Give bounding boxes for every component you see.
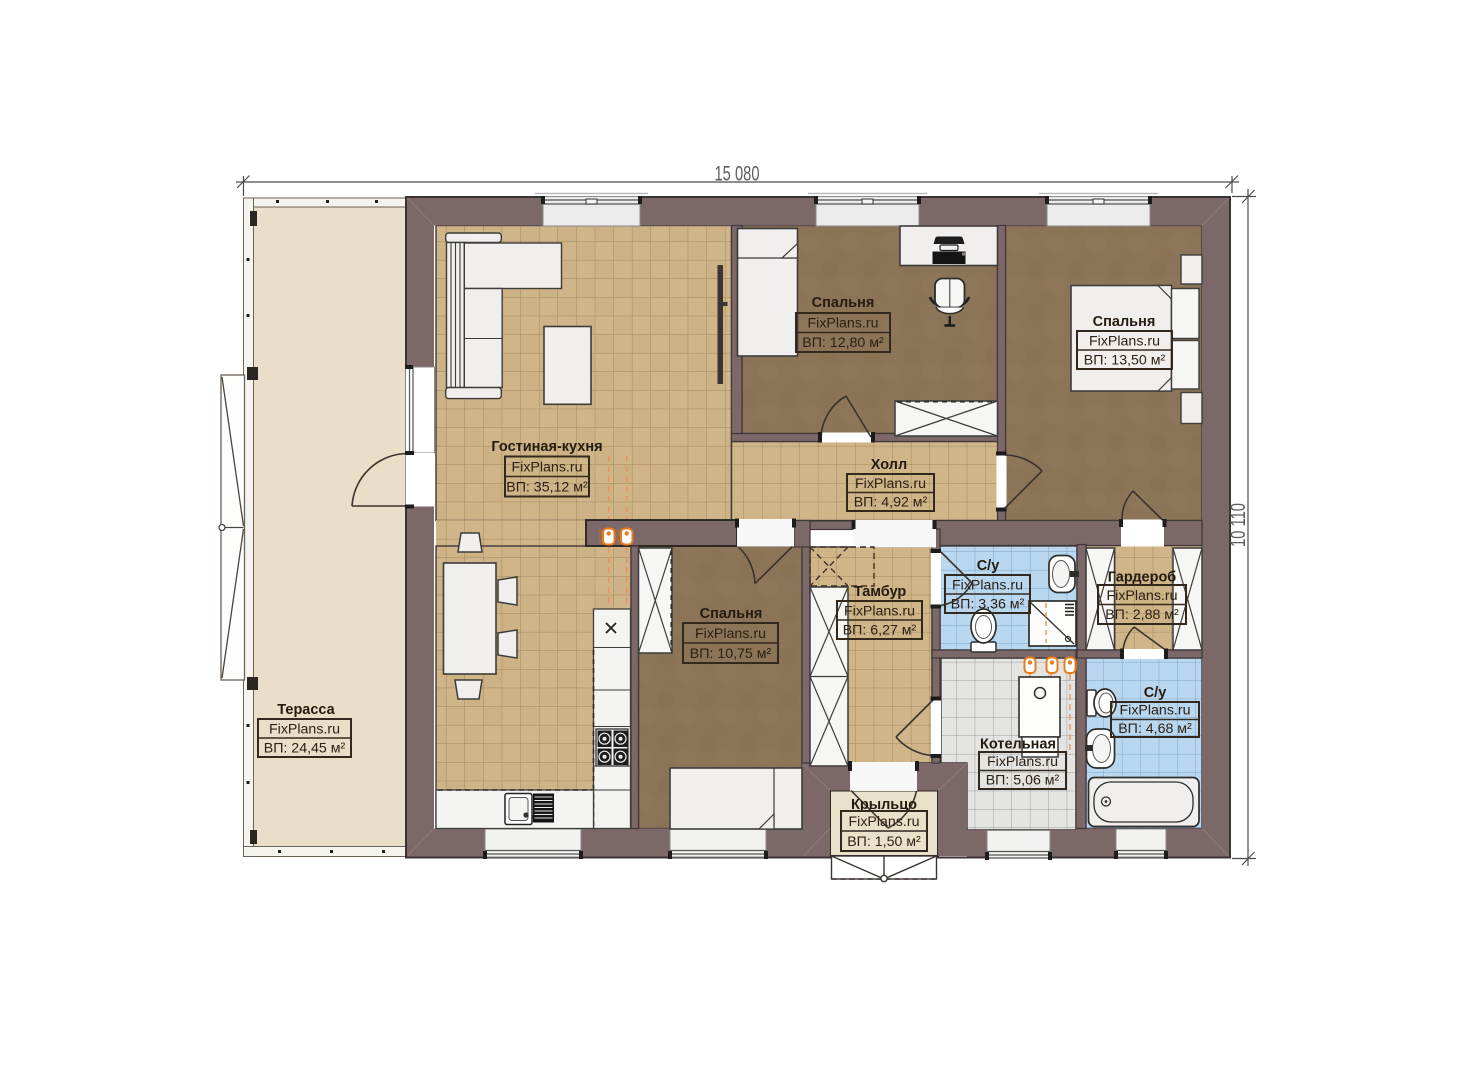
svg-text:FixPlans.ru: FixPlans.ru: [855, 476, 926, 492]
svg-text:Спальня: Спальня: [812, 295, 875, 311]
svg-text:ВП: 5,06 м²: ВП: 5,06 м²: [986, 773, 1060, 789]
svg-text:ВП: 2,88 м²: ВП: 2,88 м²: [1105, 607, 1179, 623]
svg-text:FixPlans.ru: FixPlans.ru: [844, 604, 915, 620]
svg-text:С/у: С/у: [1144, 685, 1167, 701]
svg-text:ВП: 13,50 м²: ВП: 13,50 м²: [1084, 353, 1166, 369]
svg-text:ВП: 4,92 м²: ВП: 4,92 м²: [854, 495, 928, 511]
svg-text:Холл: Холл: [871, 457, 907, 473]
svg-text:FixPlans.ru: FixPlans.ru: [1107, 588, 1178, 604]
svg-text:Терасса: Терасса: [277, 702, 335, 718]
svg-text:FixPlans.ru: FixPlans.ru: [269, 722, 340, 738]
svg-text:FixPlans.ru: FixPlans.ru: [695, 626, 766, 642]
svg-text:ВП: 3,36 м²: ВП: 3,36 м²: [951, 597, 1025, 613]
svg-text:ВП: 6,27 м²: ВП: 6,27 м²: [843, 623, 917, 639]
svg-text:FixPlans.ru: FixPlans.ru: [808, 316, 879, 332]
svg-text:Тамбур: Тамбур: [854, 584, 907, 600]
svg-text:ВП: 1,50 м²: ВП: 1,50 м²: [847, 834, 921, 850]
svg-text:ВП: 10,75 м²: ВП: 10,75 м²: [690, 646, 772, 662]
svg-text:ВП: 4,68 м²: ВП: 4,68 м²: [1118, 721, 1192, 737]
svg-text:FixPlans.ru: FixPlans.ru: [1120, 703, 1191, 719]
svg-text:Котельная: Котельная: [980, 737, 1056, 753]
svg-text:С/у: С/у: [977, 558, 1000, 574]
svg-text:Гардероб: Гардероб: [1108, 570, 1177, 586]
svg-text:15 080: 15 080: [715, 163, 760, 186]
svg-text:ВП: 12,80 м²: ВП: 12,80 м²: [802, 335, 884, 351]
svg-text:FixPlans.ru: FixPlans.ru: [987, 754, 1058, 770]
svg-text:10 110: 10 110: [1227, 503, 1250, 547]
svg-text:FixPlans.ru: FixPlans.ru: [512, 460, 583, 476]
svg-text:FixPlans.ru: FixPlans.ru: [1089, 334, 1160, 350]
svg-text:Спальня: Спальня: [700, 606, 763, 622]
svg-text:ВП: 24,45 м²: ВП: 24,45 м²: [264, 741, 346, 757]
svg-text:FixPlans.ru: FixPlans.ru: [849, 814, 920, 830]
svg-text:Спальня: Спальня: [1093, 314, 1156, 330]
svg-text:FixPlans.ru: FixPlans.ru: [952, 578, 1023, 594]
svg-text:Гостиная-кухня: Гостиная-кухня: [491, 439, 602, 455]
svg-text:ВП: 35,12 м²: ВП: 35,12 м²: [506, 480, 588, 496]
